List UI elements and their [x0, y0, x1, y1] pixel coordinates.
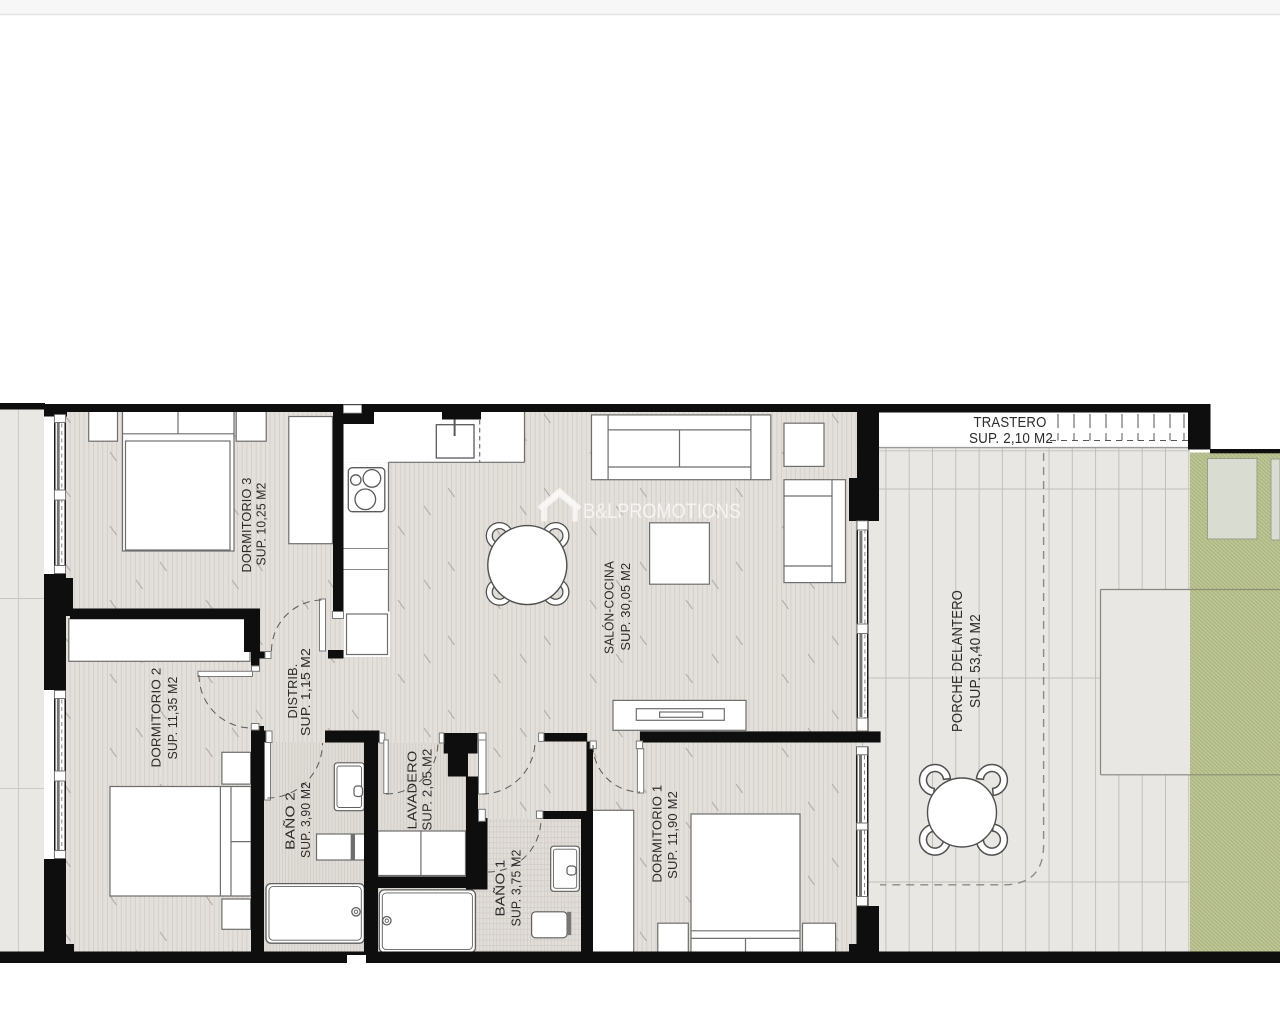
svg-text:BAÑO 1: BAÑO 1: [493, 860, 508, 917]
svg-text:DORMITORIO 1: DORMITORIO 1: [650, 785, 665, 883]
svg-text:SUP. 53,40 M2: SUP. 53,40 M2: [968, 614, 984, 708]
svg-text:SUP. 30,05 M2: SUP. 30,05 M2: [618, 563, 633, 651]
svg-text:DORMITORIO 2: DORMITORIO 2: [149, 668, 164, 768]
svg-text:B&LPROMOTIONS: B&LPROMOTIONS: [583, 499, 741, 523]
svg-text:TRASTERO: TRASTERO: [974, 415, 1047, 431]
svg-text:SUP. 3,75 M2: SUP. 3,75 M2: [509, 850, 524, 927]
svg-text:SUP. 11,90 M2: SUP. 11,90 M2: [665, 791, 680, 879]
svg-text:SUP. 1,15 M2: SUP. 1,15 M2: [298, 648, 313, 736]
svg-text:LAVADERO: LAVADERO: [405, 751, 420, 830]
svg-text:PORCHE DELANTERO: PORCHE DELANTERO: [950, 590, 966, 732]
svg-text:BAÑO 2: BAÑO 2: [283, 792, 298, 850]
svg-text:SUP. 3,90 M2: SUP. 3,90 M2: [298, 782, 313, 858]
svg-text:SALÓN-COCINA: SALÓN-COCINA: [602, 561, 617, 654]
svg-text:SUP. 2,10 M2: SUP. 2,10 M2: [969, 431, 1053, 447]
svg-text:DORMITORIO 3: DORMITORIO 3: [239, 478, 254, 573]
svg-text:SUP. 11,35 M2: SUP. 11,35 M2: [165, 677, 180, 760]
svg-text:SUP. 2,05 M2: SUP. 2,05 M2: [420, 749, 435, 831]
svg-text:SUP. 10,25 M2: SUP. 10,25 M2: [254, 483, 269, 566]
